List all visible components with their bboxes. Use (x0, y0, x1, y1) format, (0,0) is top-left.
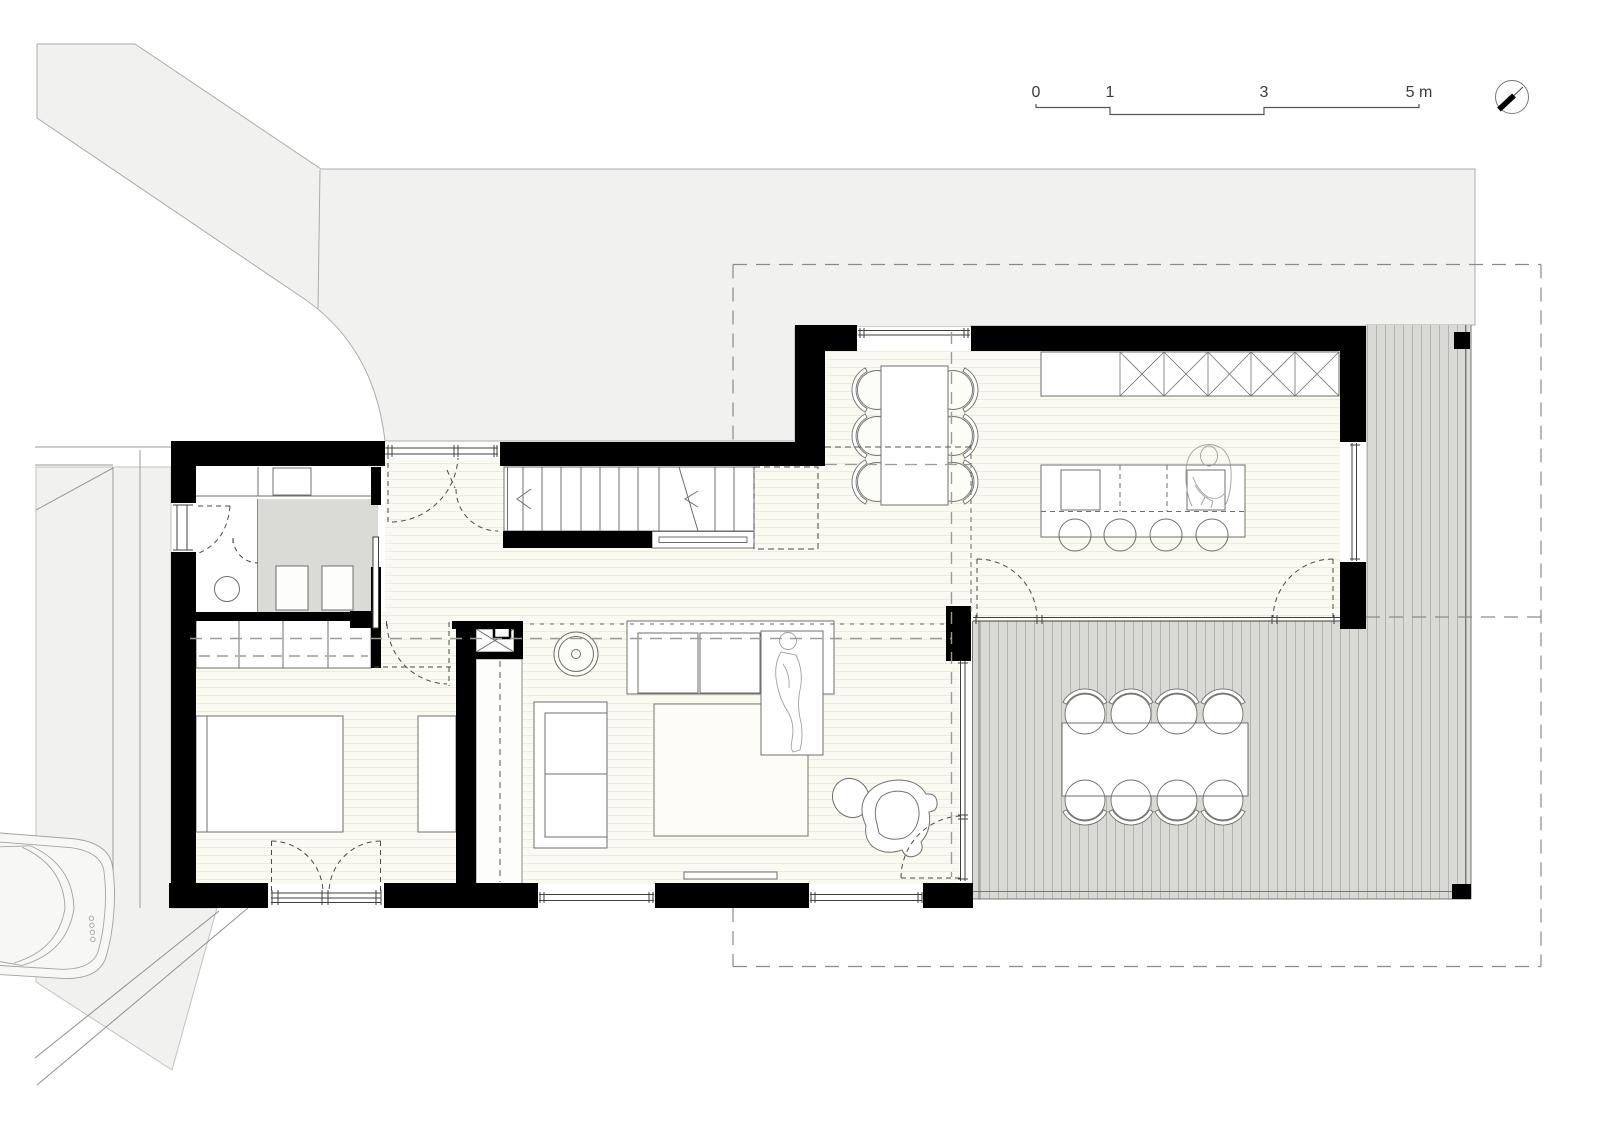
svg-text:1: 1 (1106, 84, 1115, 101)
svg-text:0: 0 (1032, 84, 1041, 101)
svg-text:5 m: 5 m (1406, 84, 1433, 101)
svg-text:3: 3 (1260, 84, 1269, 101)
